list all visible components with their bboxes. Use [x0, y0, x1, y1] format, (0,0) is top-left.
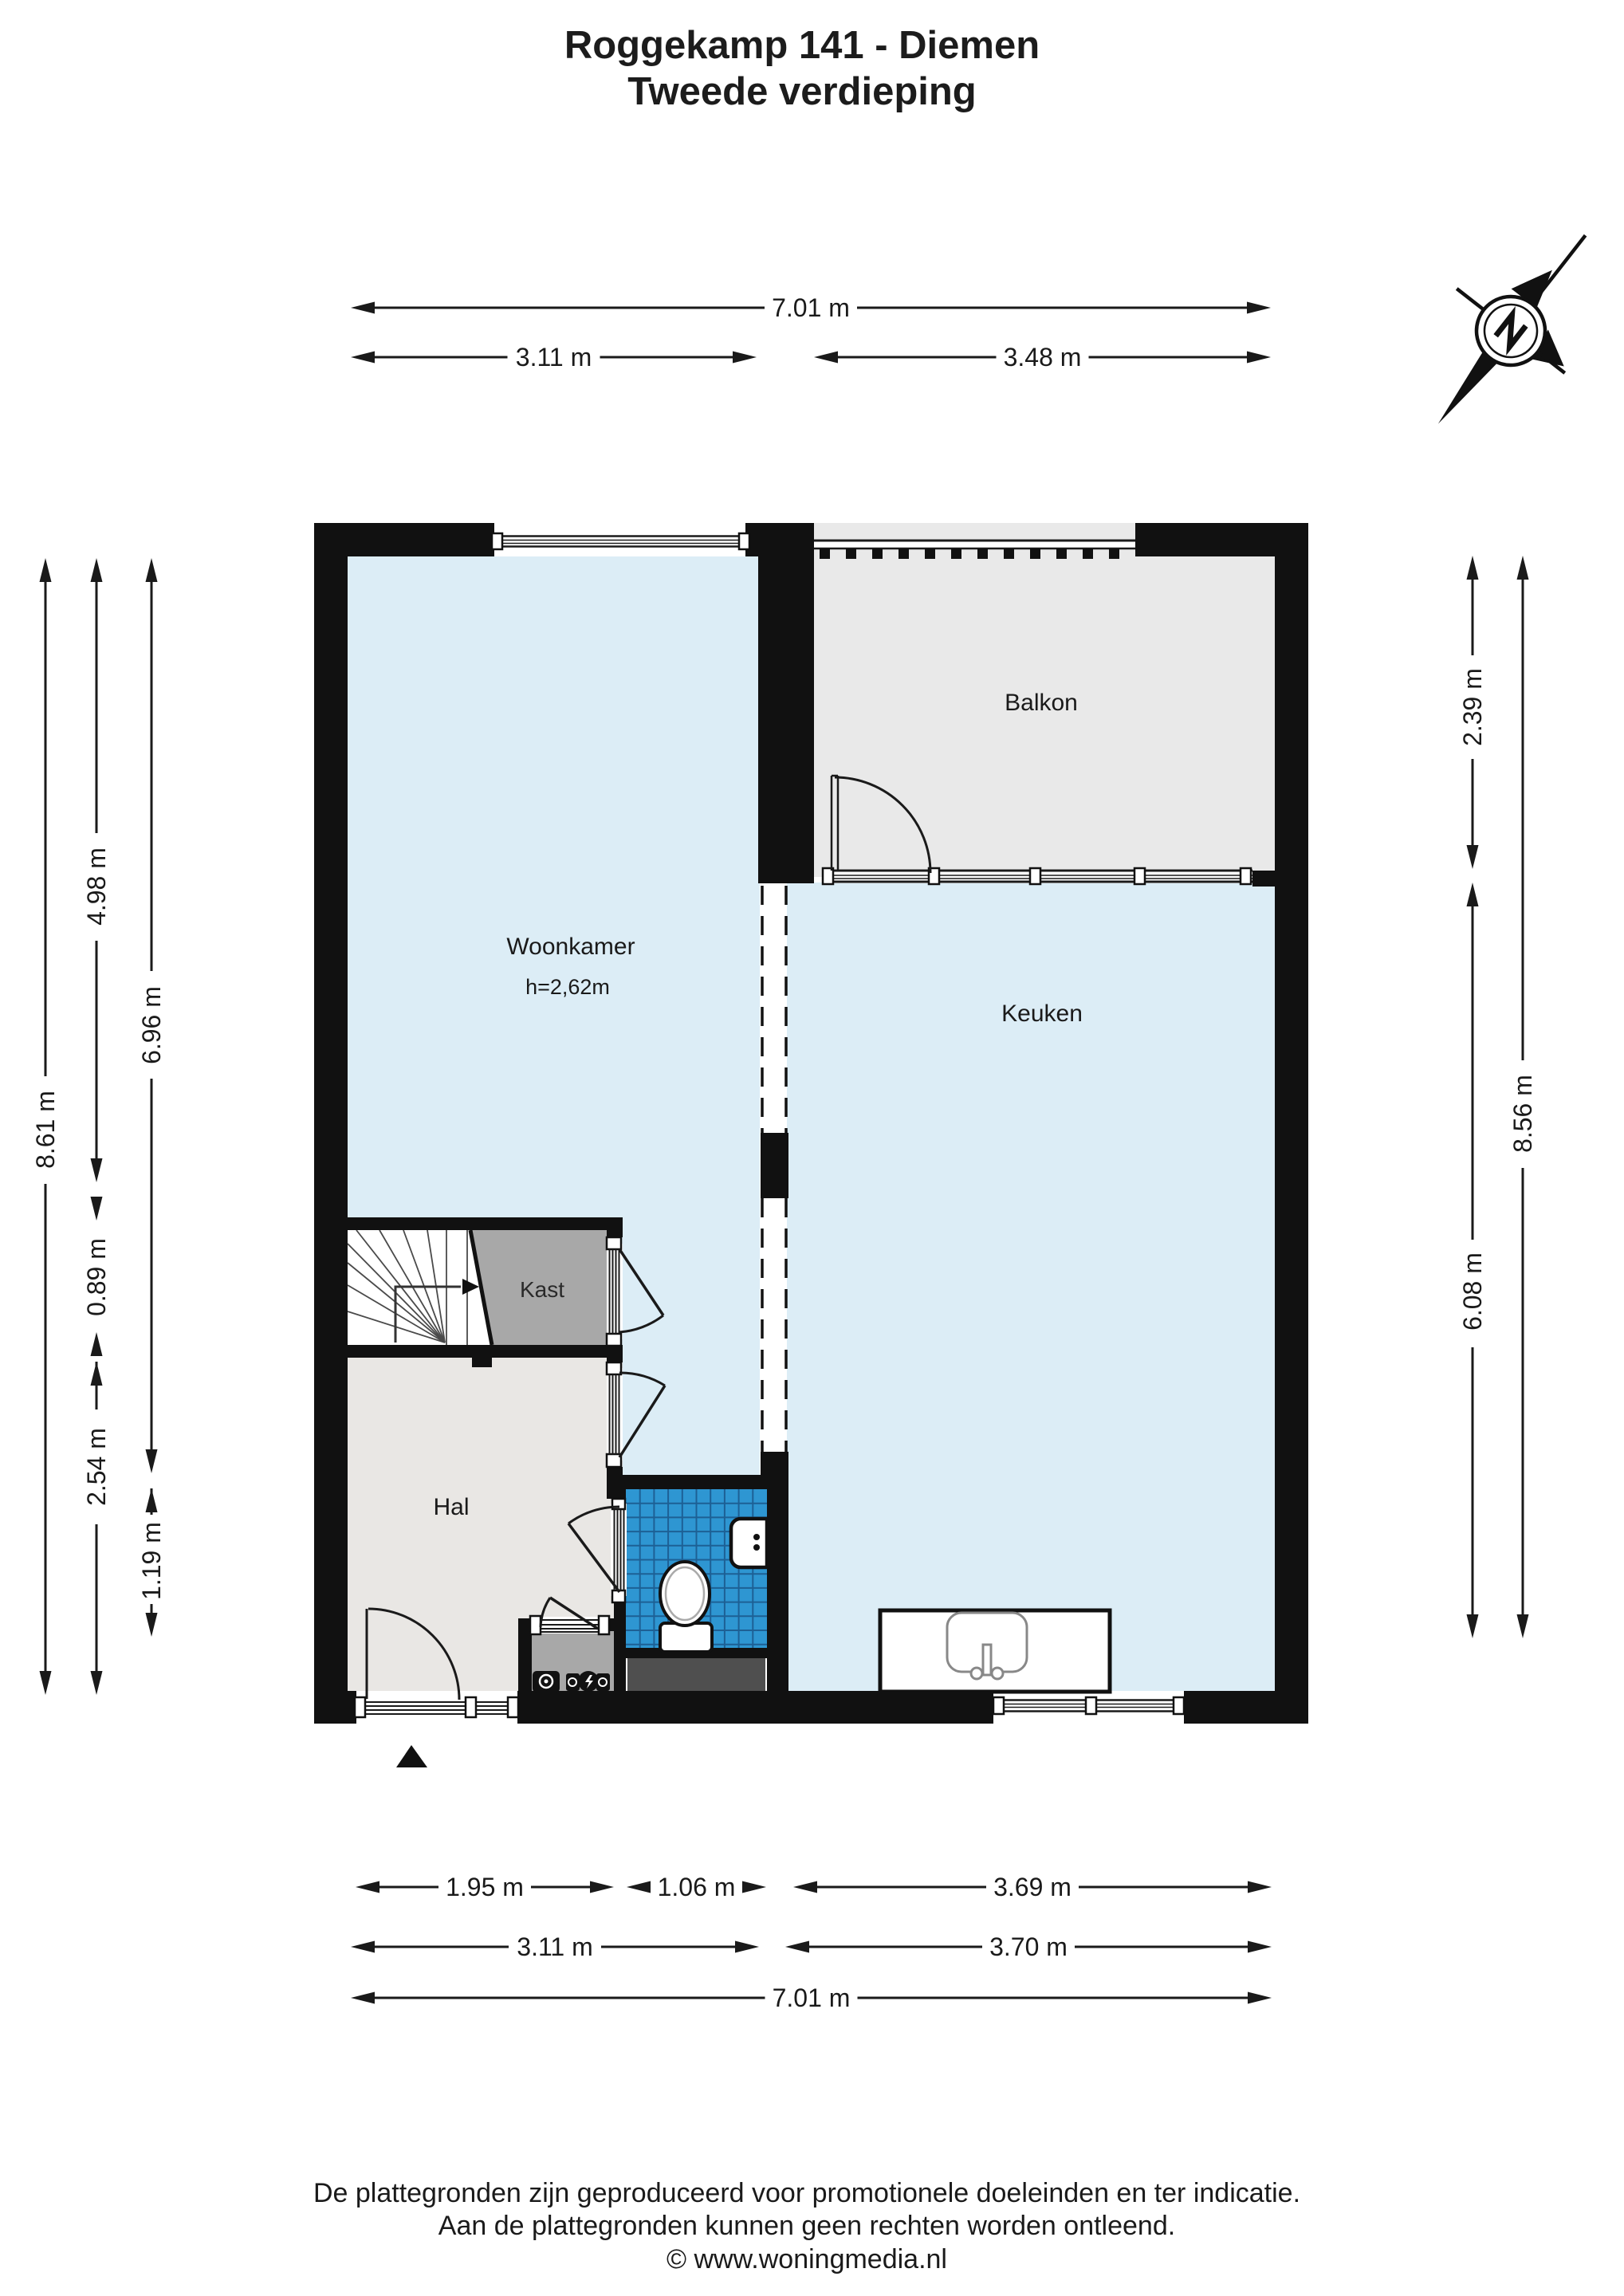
svg-text:8.61 m: 8.61 m [31, 1091, 60, 1169]
svg-text:6.08 m: 6.08 m [1458, 1252, 1487, 1331]
svg-text:7.01 m: 7.01 m [773, 1983, 851, 2012]
svg-text:De plattegronden zijn geproduc: De plattegronden zijn geproduceerd voor … [313, 2178, 1300, 2208]
svg-text:Woonkamer: Woonkamer [506, 934, 635, 960]
svg-text:0.89 m: 0.89 m [82, 1238, 111, 1316]
svg-text:Tweede verdieping: Tweede verdieping [627, 70, 976, 113]
svg-text:Balkon: Balkon [1005, 690, 1078, 716]
svg-text:3.11 m: 3.11 m [517, 1932, 592, 1961]
svg-text:1.19 m: 1.19 m [137, 1522, 166, 1600]
svg-text:2.39 m: 2.39 m [1458, 668, 1487, 746]
svg-text:Kast: Kast [520, 1277, 564, 1302]
svg-text:© www.woningmedia.nl: © www.woningmedia.nl [667, 2244, 947, 2274]
svg-text:4.98 m: 4.98 m [82, 847, 111, 926]
svg-text:3.48 m: 3.48 m [1004, 343, 1082, 372]
svg-text:Hal: Hal [433, 1494, 469, 1520]
svg-text:h=2,62m: h=2,62m [525, 975, 610, 999]
svg-text:Aan de plattegronden kunnen ge: Aan de plattegronden kunnen geen rechten… [438, 2211, 1175, 2241]
svg-text:1.95 m: 1.95 m [446, 1873, 524, 1901]
svg-text:2.54 m: 2.54 m [82, 1428, 111, 1506]
svg-text:6.96 m: 6.96 m [137, 986, 166, 1064]
svg-text:3.11 m: 3.11 m [516, 343, 592, 372]
svg-text:Keuken: Keuken [1001, 1001, 1083, 1027]
svg-text:3.69 m: 3.69 m [993, 1873, 1072, 1901]
svg-text:7.01 m: 7.01 m [772, 293, 850, 322]
svg-text:3.70 m: 3.70 m [989, 1932, 1068, 1961]
svg-text:Roggekamp 141 - Diemen: Roggekamp 141 - Diemen [564, 24, 1040, 67]
svg-text:1.06 m: 1.06 m [658, 1873, 736, 1901]
svg-text:8.56 m: 8.56 m [1508, 1075, 1537, 1153]
